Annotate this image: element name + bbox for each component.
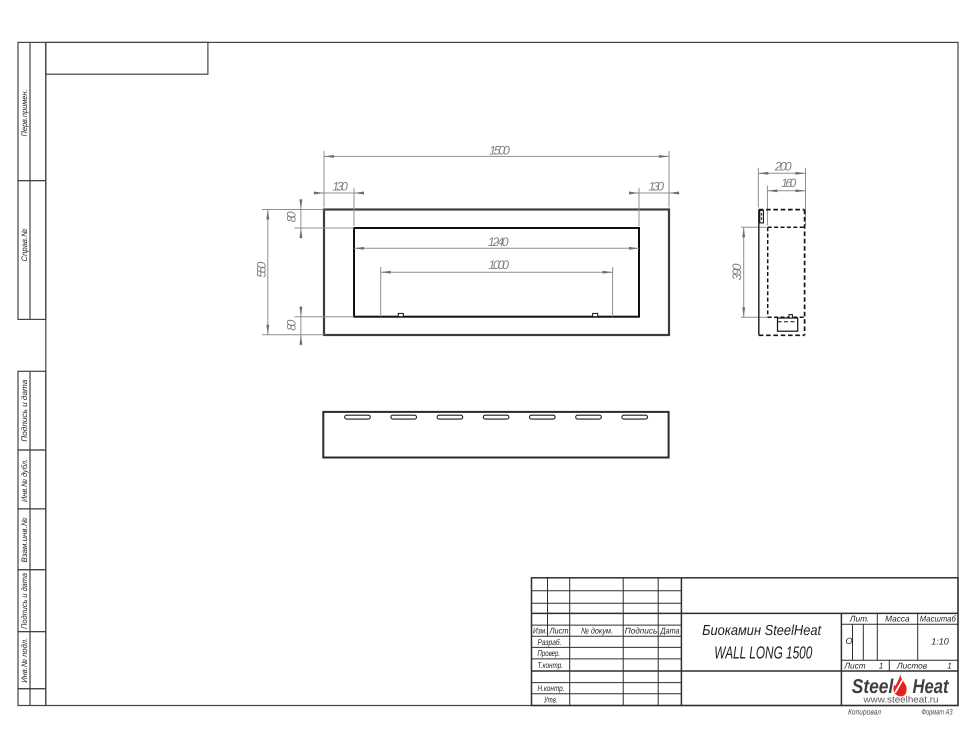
svg-text:1000: 1000 xyxy=(488,258,509,272)
svg-text:1240: 1240 xyxy=(488,235,509,249)
svg-text:Формат А3: Формат А3 xyxy=(922,708,953,717)
svg-text:Дата: Дата xyxy=(660,626,680,636)
svg-text:Инв.№ подл.: Инв.№ подл. xyxy=(20,638,29,683)
svg-text:Изм.: Изм. xyxy=(533,626,547,636)
svg-text:Масса: Масса xyxy=(885,614,910,624)
svg-text:1: 1 xyxy=(947,661,952,671)
svg-text:Подпись и дата: Подпись и дата xyxy=(20,379,29,442)
svg-text:Взам.инв.№: Взам.инв.№ xyxy=(20,517,29,562)
svg-text:1: 1 xyxy=(879,661,884,671)
svg-text:1:10: 1:10 xyxy=(931,637,949,647)
svg-text:Масштаб: Масштаб xyxy=(920,614,956,624)
svg-text:№ докум.: № докум. xyxy=(581,626,613,636)
svg-text:80: 80 xyxy=(285,320,299,331)
svg-text:Листов: Листов xyxy=(896,661,928,671)
svg-text:WALL LONG 1500: WALL LONG 1500 xyxy=(714,643,812,663)
svg-text:Лист: Лист xyxy=(549,626,569,636)
svg-text:130: 130 xyxy=(332,180,348,194)
svg-text:www.steelheat.ru: www.steelheat.ru xyxy=(862,695,938,705)
svg-text:Копировал: Копировал xyxy=(848,708,881,717)
svg-text:130: 130 xyxy=(648,180,664,194)
svg-text:80: 80 xyxy=(285,211,299,222)
svg-text:Биокамин SteelHeat: Биокамин SteelHeat xyxy=(702,623,822,639)
svg-text:Справ.№: Справ.№ xyxy=(20,228,29,261)
svg-text:200: 200 xyxy=(774,160,792,174)
svg-text:Н.контр.: Н.контр. xyxy=(538,683,565,693)
svg-text:1500: 1500 xyxy=(489,144,510,158)
svg-text:160: 160 xyxy=(781,176,797,190)
svg-text:Лит.: Лит. xyxy=(849,614,869,624)
svg-text:Утв.: Утв. xyxy=(543,695,557,705)
svg-text:Разраб.: Разраб. xyxy=(538,637,562,647)
svg-text:550: 550 xyxy=(254,262,268,278)
svg-text:390: 390 xyxy=(730,263,744,280)
svg-text:Перв.примен.: Перв.примен. xyxy=(20,90,29,137)
svg-text:Подпись: Подпись xyxy=(625,626,658,636)
svg-text:Т.контр.: Т.контр. xyxy=(538,660,564,670)
svg-text:Провер.: Провер. xyxy=(538,648,561,658)
svg-text:Лист: Лист xyxy=(843,661,865,671)
svg-text:Подпись и дата: Подпись и дата xyxy=(20,572,29,629)
svg-text:О: О xyxy=(845,636,852,646)
svg-text:Инв.№ дубл.: Инв.№ дубл. xyxy=(20,459,29,502)
